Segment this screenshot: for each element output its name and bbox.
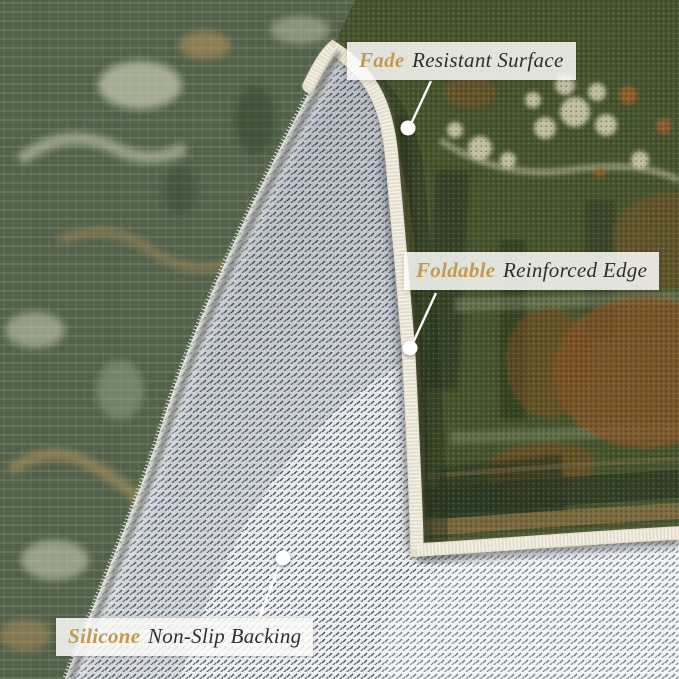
product-photo-rug-features: Fade Resistant Surface Foldable Reinforc… (0, 0, 679, 679)
callout-label-silicone-non-slip-backing: Silicone Non-Slip Backing (56, 618, 313, 656)
callout-text: Resistant Surface (407, 48, 564, 72)
callout-dot-icon (403, 341, 418, 356)
callout-keyword: Fade (359, 48, 405, 72)
callout-keyword: Silicone (68, 624, 140, 648)
callout-label-fade-resistant-surface: Fade Resistant Surface (347, 42, 576, 80)
rug-scene-illustration (0, 0, 679, 679)
callout-label-foldable-reinforced-edge: Foldable Reinforced Edge (404, 252, 659, 290)
callout-dot-icon (276, 551, 291, 566)
callout-dot-icon (401, 121, 416, 136)
callout-text: Reinforced Edge (497, 258, 647, 282)
callout-keyword: Foldable (416, 258, 495, 282)
callout-text: Non-Slip Backing (142, 624, 301, 648)
